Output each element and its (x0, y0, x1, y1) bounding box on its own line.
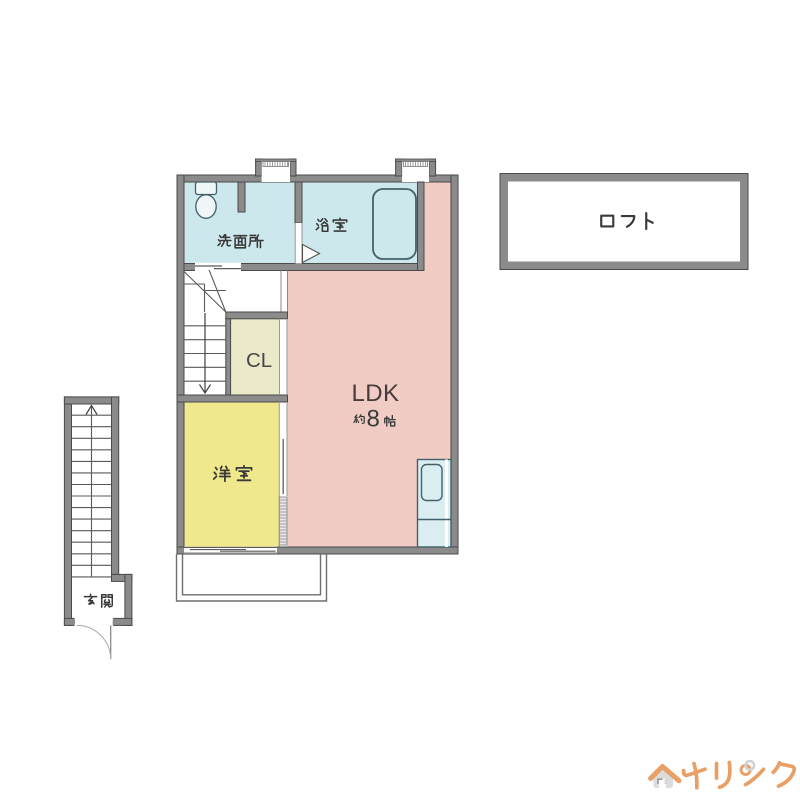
svg-text:8: 8 (367, 406, 380, 433)
svg-text:LDK: LDK (352, 380, 400, 407)
svg-text:CL: CL (246, 349, 272, 372)
